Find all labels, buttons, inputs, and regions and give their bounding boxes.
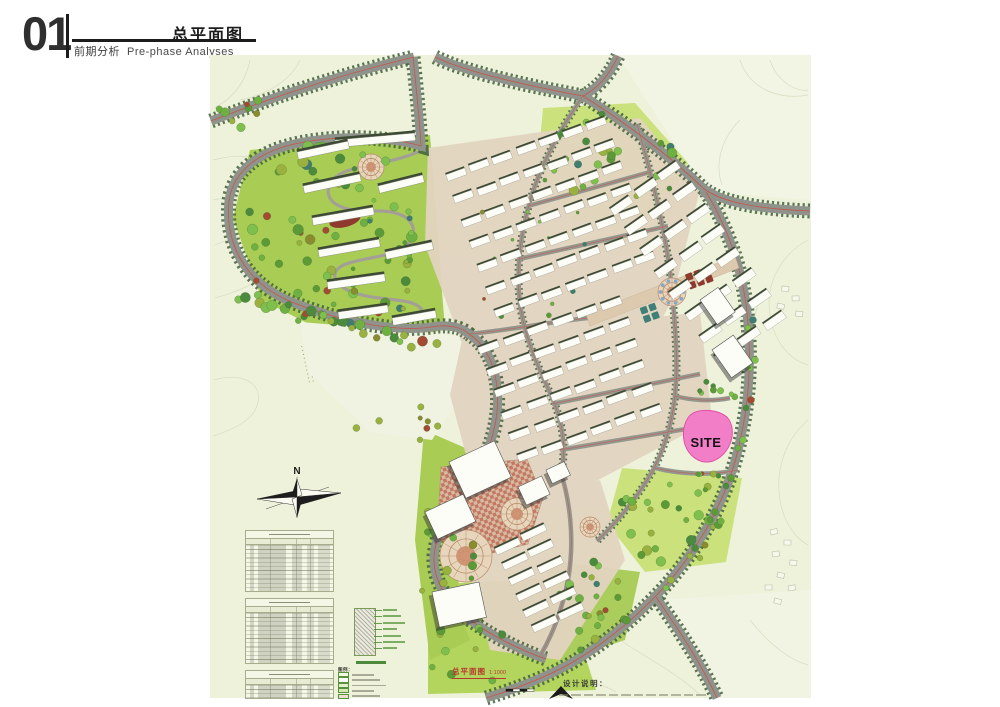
plan-caption: 总平面图 1:1000 (452, 668, 506, 679)
compass-north-label: N (293, 466, 300, 477)
legend-item (338, 694, 400, 699)
design-notes-text (559, 694, 707, 696)
map-legend: 图例： (338, 667, 400, 699)
site-label: SITE (691, 435, 722, 450)
section-hatch (354, 608, 376, 656)
road-section-detail (352, 602, 404, 666)
plaza-mandala (580, 517, 600, 537)
design-notes-title: 设计说明： (563, 680, 608, 688)
indicator-table-phase1 (245, 530, 334, 592)
master-plan-map: SITEN (0, 0, 1000, 707)
indicator-table-phase2 (245, 598, 334, 664)
indicator-table-phase3 (245, 670, 334, 699)
